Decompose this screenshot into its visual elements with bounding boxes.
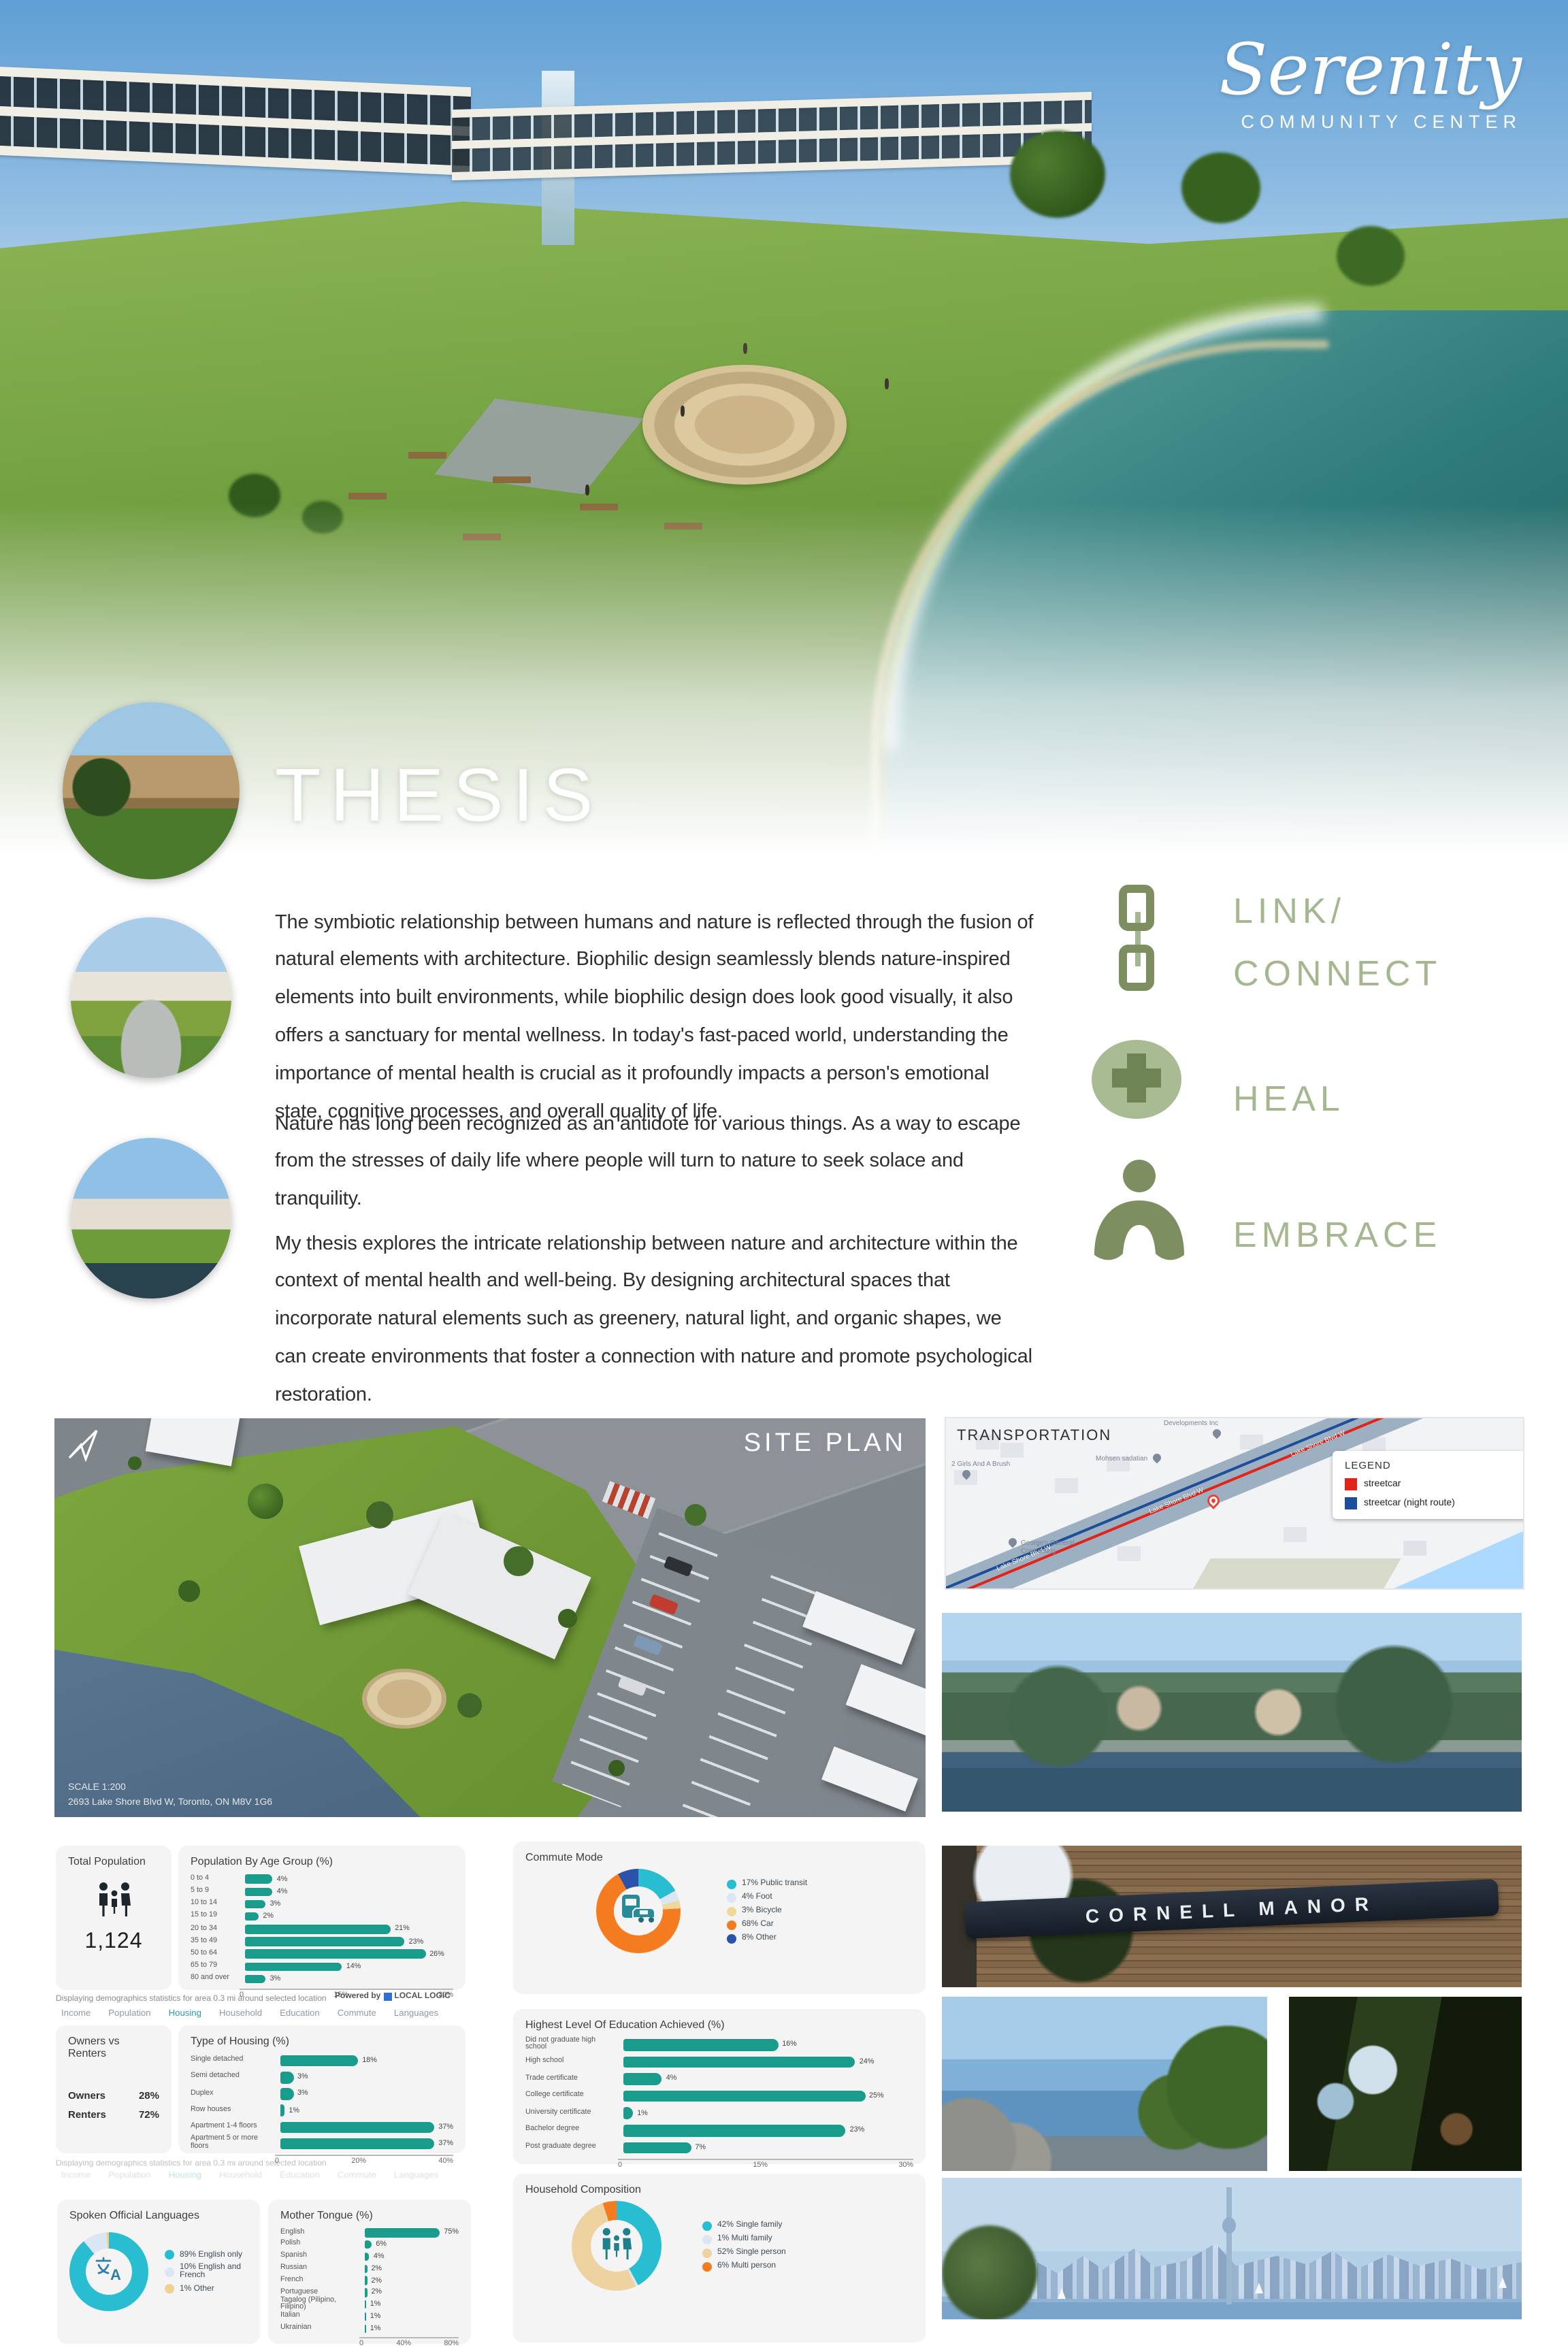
tab-household[interactable]: Household (219, 2171, 262, 2180)
bar-category-label: Russian (280, 2265, 365, 2272)
bar-row: 80 and over3% (191, 1973, 453, 1985)
legend-label: 8% Other (742, 1934, 777, 1942)
legend-item: 42% Single family (702, 2221, 786, 2230)
legend-swatch (727, 1879, 736, 1889)
bar-category-label: Italian (280, 2313, 365, 2320)
powered-by-label: Powered by (335, 1993, 380, 2001)
bar-row: Tagalog (Pilipino, Filipino)1% (280, 2299, 459, 2311)
map-pin-label: Developments Inc (1164, 1420, 1218, 1428)
site-plan-rendering: SITE PLAN SCALE 1:200 2693 Lake Shore Bl… (54, 1418, 926, 1817)
bar-value: 23% (409, 1938, 424, 1946)
stat-row: Owners28% (68, 2089, 159, 2102)
bar-value: 1% (289, 2106, 299, 2114)
bar-track: 18% (280, 2055, 453, 2067)
axis-tick: 15% (753, 2161, 768, 2170)
bar-category-label: 20 to 34 (191, 1925, 245, 1933)
cn-tower (1226, 2188, 1231, 2304)
bar-value: 2% (263, 1912, 274, 1921)
bar-row: High school24% (525, 2053, 913, 2070)
bar-value: 2% (371, 2265, 382, 2273)
bar-category-label: Portuguese (280, 2289, 365, 2296)
bar-category-label: English (280, 2229, 365, 2236)
tab-income[interactable]: Income (61, 2009, 91, 2019)
demographics-caption: Displaying demographics statistics for a… (56, 2160, 327, 2168)
bar-value: 37% (438, 2140, 453, 2148)
commute-donut (596, 1869, 681, 1953)
site-plan-trees (248, 1484, 283, 1519)
axis-tick: 20% (351, 2157, 366, 2166)
legend-swatch (702, 2221, 712, 2230)
chain-link-icon (1117, 885, 1156, 1000)
bar-track: 3% (245, 1975, 453, 1984)
bar-category-label: 50 to 64 (191, 1950, 245, 1958)
thesis-paragraph-2: Nature has long been recognized as an an… (275, 1106, 1034, 1220)
bar-row: Row houses1% (191, 2102, 453, 2119)
map-legend-label: streetcar (night route) (1364, 1497, 1455, 1509)
stat-label: Renters (68, 2108, 106, 2121)
bar-category-label: Tagalog (Pilipino, Filipino) (280, 2297, 365, 2313)
legend-label: 6% Multi person (717, 2262, 776, 2270)
bar-category-label: 80 and over (191, 1976, 245, 1983)
local-logic-icon (383, 1993, 391, 2001)
bar-value: 1% (370, 2313, 381, 2321)
legend-item: 3% Bicycle (727, 1906, 807, 1916)
brand-title: Serenity (1219, 35, 1522, 106)
total-population-card: Total Population 1,124 (56, 1846, 171, 1990)
bar-value: 23% (850, 2127, 865, 2135)
age-bar-chart: 0 to 44%5 to 94%10 to 143%15 to 192%20 t… (191, 1873, 453, 1999)
bar-category-label: Ukrainian (280, 2325, 365, 2332)
tab-population[interactable]: Population (108, 2171, 150, 2180)
powered-by-brand: LOCAL LOGIC (394, 1993, 450, 2001)
legend-swatch (165, 2284, 174, 2293)
bar-value: 3% (270, 1975, 281, 1983)
bar-value: 21% (395, 1925, 410, 1933)
bar-row: Semi detached3% (191, 2069, 453, 2085)
transportation-title: TRANSPORTATION (957, 1428, 1111, 1444)
map-legend-label: streetcar (1364, 1478, 1401, 1490)
languages-legend: 89% English only10% English and French1%… (165, 2246, 248, 2298)
bar-row: Ukrainian1% (280, 2323, 459, 2335)
education-chart-title: Highest Level Of Education Achieved (%) (525, 2019, 913, 2031)
tab-languages[interactable]: Languages (394, 2009, 438, 2019)
site-plan-title: SITE PLAN (744, 1429, 906, 1459)
cornell-manor-sign-text: CORNELL MANOR (1085, 1892, 1378, 1927)
north-arrow-icon (65, 1426, 101, 1469)
bar-category-label: Semi detached (191, 2074, 280, 2081)
x-axis: 015%30% (618, 2159, 913, 2170)
housing-type-chart-card: Type of Housing (%) Single detached18%Se… (178, 2025, 465, 2153)
site-plan-scale: SCALE 1:200 (68, 1783, 126, 1793)
bar-category-label: 5 to 9 (191, 1888, 245, 1895)
bar-value: 3% (297, 2090, 308, 2098)
tab-household[interactable]: Household (219, 2009, 262, 2019)
bar-track: 2% (245, 1912, 453, 1921)
axis-tick: 0 (618, 2161, 622, 2170)
map-legend-swatch (1345, 1497, 1357, 1509)
bar-value: 4% (374, 2253, 385, 2261)
bar-track: 6% (365, 2240, 459, 2249)
legend-item: 68% Car (727, 1920, 807, 1929)
bar-category-label: Bachelor degree (525, 2127, 623, 2134)
bar-category-label: University certificate (525, 2110, 623, 2117)
bar-value: 2% (371, 2276, 382, 2285)
total-population-title: Total Population (68, 1855, 159, 1867)
map-pin-label: Mohsen sadatian (1096, 1455, 1147, 1463)
bar-category-label: 10 to 14 (191, 1900, 245, 1908)
legend-swatch (727, 1906, 736, 1916)
bar-track: 4% (245, 1875, 453, 1884)
bar-value: 3% (297, 2074, 308, 2082)
education-bar-chart: Did not graduate high school16%High scho… (525, 2036, 913, 2170)
bar-track: 37% (280, 2138, 453, 2150)
site-plan-amphitheater (362, 1669, 446, 1729)
bar (365, 2276, 367, 2285)
bar (623, 2108, 633, 2119)
family-icon (93, 1881, 134, 1923)
bar (365, 2240, 372, 2249)
owners-vs-renters-card: Owners vs Renters Owners28%Renters72% (56, 2025, 171, 2153)
value-label-embrace: EMBRACE (1233, 1203, 1441, 1267)
commute-legend: 17% Public transit4% Foot3% Bicycle68% C… (727, 1875, 807, 1947)
bar-track: 23% (623, 2125, 913, 2136)
site-plan-neighbor-building (146, 1418, 242, 1466)
bar-value: 6% (376, 2240, 387, 2249)
bar-row: Polish6% (280, 2239, 459, 2251)
age-group-chart-card: Population By Age Group (%) 0 to 44%5 to… (178, 1846, 465, 1990)
thumbnail-render-3 (71, 1138, 231, 1298)
languages-title: Spoken Official Languages (69, 2209, 248, 2221)
legend-item: 1% Other (165, 2284, 248, 2293)
map-water (1394, 1531, 1523, 1588)
mother-tongue-bar-chart: English75%Polish6%Spanish4%Russian2%Fren… (280, 2227, 459, 2348)
medical-cross-icon (1089, 1037, 1184, 1128)
bar-category-label: 65 to 79 (191, 1963, 245, 1970)
presentation-board: Serenity COMMUNITY CENTER THESIS The sym… (0, 0, 1568, 2352)
legend-item: 17% Public transit (727, 1879, 807, 1889)
bar-track: 7% (623, 2142, 913, 2153)
bar-row: 0 to 44% (191, 1873, 453, 1885)
bar-value: 37% (438, 2123, 453, 2131)
bar-row: 65 to 7914% (191, 1961, 453, 1973)
bar-track: 14% (245, 1962, 453, 1971)
housing-chart-title: Type of Housing (%) (191, 2035, 453, 2047)
photo-shaded-picnic-area (1289, 1997, 1522, 2171)
household-title: Household Composition (525, 2183, 913, 2195)
bar (245, 1912, 259, 1921)
spoken-languages-card: Spoken Official Languages A 89% English … (57, 2200, 260, 2344)
legend-item: 1% Multi family (702, 2234, 786, 2244)
bar-row: 5 to 94% (191, 1885, 453, 1897)
tab-commute[interactable]: Commute (338, 2009, 376, 2019)
bar-value: 16% (782, 2041, 797, 2049)
bar (245, 1875, 273, 1884)
bar-track: 2% (365, 2264, 459, 2273)
bar-track: 37% (280, 2121, 453, 2133)
commute-mode-card: Commute Mode 17% Public transit4% Foot3%… (513, 1842, 926, 1994)
bar (245, 1899, 266, 1908)
bar (365, 2228, 440, 2237)
tab-languages[interactable]: Languages (394, 2171, 438, 2180)
axis-tick: 30% (898, 2161, 913, 2170)
skyline-tree (942, 2226, 1037, 2319)
bar-value: 1% (370, 2300, 381, 2308)
legend-swatch (165, 2267, 174, 2276)
bar-track: 75% (365, 2228, 459, 2237)
legend-item: 89% English only (165, 2250, 248, 2259)
map-legend-item: streetcar (night route) (1345, 1497, 1519, 1509)
owners-renters-title: Owners vs Renters (68, 2035, 159, 2059)
photo-shoreline-aerial (942, 1613, 1522, 1812)
x-axis: 040%80% (359, 2337, 459, 2348)
bar-row: Spanish4% (280, 2251, 459, 2263)
bar-category-label: 15 to 19 (191, 1913, 245, 1921)
map-legend-swatch (1345, 1478, 1357, 1490)
map-pin-icon (1151, 1452, 1163, 1464)
mother-tongue-title: Mother Tongue (%) (280, 2209, 459, 2221)
family-icon (598, 2226, 636, 2266)
bar-track: 23% (245, 1938, 453, 1946)
bar-category-label: Polish (280, 2241, 365, 2249)
tab-education[interactable]: Education (280, 2009, 320, 2019)
bar-value: 7% (695, 2144, 706, 2152)
legend-label: 10% English and French (180, 2264, 248, 2280)
bar-value: 24% (860, 2058, 875, 2066)
transportation-map: Lake Shore Blvd W Lake Shore Blvd W Lake… (946, 1418, 1523, 1588)
bar-category-label: Did not graduate high school (525, 2037, 623, 2053)
legend-swatch (727, 1933, 736, 1943)
site-plan-neighbor-building (821, 1746, 918, 1812)
bar-value: 14% (346, 1963, 361, 1971)
site-plan-address: 2693 Lake Shore Blvd W, Toronto, ON M8V … (68, 1798, 272, 1808)
thumbnail-render-2 (71, 917, 231, 1078)
tab-housing[interactable]: Housing (169, 2171, 201, 2180)
bar-value: 26% (429, 1950, 444, 1958)
bar-category-label: Row houses (191, 2107, 280, 2114)
bar-row: Bachelor degree23% (525, 2122, 913, 2139)
bar (623, 2091, 865, 2102)
bar (623, 2125, 846, 2136)
map-legend: LEGEND streetcarstreetcar (night route) (1333, 1451, 1523, 1519)
legend-label: 17% Public transit (742, 1880, 807, 1888)
brand-subtitle: COMMUNITY CENTER (1219, 112, 1522, 132)
housing-bar-chart: Single detached18%Semi detached3%Duplex3… (191, 2053, 453, 2166)
bar (623, 2142, 691, 2153)
bar-track: 24% (623, 2056, 913, 2068)
skyline-city-band (1011, 2237, 1522, 2300)
tab-housing[interactable]: Housing (169, 2009, 201, 2019)
bar-category-label: High school (525, 2058, 623, 2065)
bar (365, 2324, 366, 2333)
bar-track: 3% (245, 1899, 453, 1908)
bar-value: 1% (370, 2325, 381, 2333)
bar-row: French2% (280, 2274, 459, 2287)
axis-tick: 40% (438, 2157, 453, 2166)
tab-population[interactable]: Population (108, 2009, 150, 2019)
bar-value: 1% (637, 2109, 648, 2117)
bar-category-label: Duplex (191, 2090, 280, 2097)
bar (365, 2264, 367, 2273)
bar-track: 4% (245, 1887, 453, 1896)
bar (280, 2105, 284, 2117)
bar-value: 4% (666, 2075, 677, 2083)
legend-label: 52% Single person (717, 2249, 786, 2257)
bar-value: 2% (371, 2289, 382, 2297)
bar-track: 4% (623, 2073, 913, 2085)
legend-label: 1% Multi family (717, 2235, 772, 2243)
bar (245, 1962, 342, 1971)
legend-label: 4% Foot (742, 1893, 772, 1901)
bar-row: 50 to 6426% (191, 1948, 453, 1960)
bar-track: 21% (245, 1925, 453, 1933)
sailboat (1255, 2283, 1263, 2293)
bar-track: 1% (365, 2312, 459, 2321)
bar-row: Russian2% (280, 2263, 459, 2275)
total-population-value: 1,124 (84, 1930, 142, 1955)
bar-row: College certificate25% (525, 2088, 913, 2105)
mother-tongue-chart-card: Mother Tongue (%) English75%Polish6%Span… (268, 2200, 471, 2344)
bar-row: 35 to 4923% (191, 1935, 453, 1948)
bar (245, 1887, 273, 1896)
bar-track: 26% (245, 1950, 453, 1959)
bar-category-label: Apartment 1-4 floors (191, 2123, 280, 2131)
household-composition-card: Household Composition 42% Single family1… (513, 2174, 926, 2342)
household-donut (572, 2201, 661, 2291)
bar-row: 15 to 192% (191, 1910, 453, 1923)
bar-category-label: Apartment 5 or more floors (191, 2136, 280, 2152)
value-link-line1: LINK/ (1233, 879, 1441, 943)
stat-value: 28% (139, 2089, 159, 2102)
bar-row: English75% (280, 2227, 459, 2239)
map-pin-icon (1211, 1428, 1223, 1439)
legend-swatch (727, 1920, 736, 1929)
bar-row: Apartment 5 or more floors37% (191, 2136, 453, 2152)
household-legend: 42% Single family1% Multi family52% Sing… (702, 2217, 786, 2275)
demographics-tab-bar-faint: IncomePopulationHousingHouseholdEducatio… (61, 2171, 438, 2180)
bar-row: Italian1% (280, 2310, 459, 2323)
bar-row: Apartment 1-4 floors37% (191, 2119, 453, 2136)
bar (365, 2300, 366, 2309)
legend-swatch (165, 2250, 174, 2259)
bar (245, 1925, 391, 1933)
age-chart-title: Population By Age Group (%) (191, 1855, 453, 1867)
bar-track: 25% (623, 2091, 913, 2102)
sailboat (1058, 2288, 1066, 2299)
bar-category-label: Post graduate degree (525, 2144, 623, 2151)
bar-category-label: Spanish (280, 2253, 365, 2260)
tab-commute[interactable]: Commute (338, 2171, 376, 2180)
legend-label: 42% Single family (717, 2221, 782, 2229)
map-legend-item: streetcar (1345, 1478, 1519, 1490)
axis-tick: 40% (396, 2340, 411, 2348)
bar-row: Single detached18% (191, 2053, 453, 2069)
bar-track: 1% (623, 2108, 913, 2119)
value-label-heal: HEAL (1233, 1067, 1345, 1130)
person-embrace-icon (1081, 1157, 1198, 1267)
map-pin-label: George's General Contracting (1021, 1539, 1102, 1556)
legend-item: 10% English and French (165, 2264, 248, 2280)
bar (280, 2138, 434, 2150)
photo-cornell-manor: CORNELL MANOR (942, 1846, 1522, 1987)
bar (623, 2073, 662, 2085)
commute-title: Commute Mode (525, 1851, 913, 1863)
bar-category-label: French (280, 2277, 365, 2285)
legend-item: 8% Other (727, 1933, 807, 1943)
legend-swatch (702, 2248, 712, 2257)
owners-renters-rows: Owners28%Renters72% (68, 2089, 159, 2121)
axis-tick: 80% (444, 2340, 459, 2348)
bar-value: 18% (362, 2057, 377, 2065)
bar (623, 2056, 855, 2068)
tab-education[interactable]: Education (280, 2171, 320, 2180)
svg-text:A: A (110, 2266, 121, 2282)
legend-swatch (702, 2261, 712, 2271)
bar-row: University certificate1% (525, 2105, 913, 2122)
legend-item: 52% Single person (702, 2248, 786, 2257)
bar-track: 1% (365, 2324, 459, 2333)
thesis-paragraph-3: My thesis explores the intricate relatio… (275, 1226, 1034, 1415)
bar (280, 2055, 358, 2067)
bar-row: Post graduate degree7% (525, 2139, 913, 2156)
tab-income[interactable]: Income (61, 2171, 91, 2180)
bar-track: 1% (280, 2105, 453, 2117)
bar-category-label: 0 to 4 (191, 1876, 245, 1883)
bar-category-label: Single detached (191, 2057, 280, 2065)
stat-row: Renters72% (68, 2108, 159, 2121)
languages-donut-hole: A (86, 2249, 132, 2295)
bar-track: 3% (280, 2072, 453, 2083)
site-plan-neighbor-building (846, 1664, 926, 1750)
bar-value: 4% (277, 1888, 288, 1896)
bar (245, 1975, 266, 1984)
languages-donut: A (69, 2232, 148, 2311)
map-legend-items: streetcarstreetcar (night route) (1345, 1478, 1519, 1509)
bar (365, 2288, 367, 2297)
bar-category-label: 35 to 49 (191, 1938, 245, 1945)
legend-label: 3% Bicycle (742, 1907, 782, 1915)
photo-toronto-skyline (942, 2178, 1522, 2319)
thesis-heading: THESIS (275, 751, 602, 838)
bar-track: 16% (623, 2039, 913, 2051)
legend-item: 6% Multi person (702, 2261, 786, 2271)
thesis-paragraph-1: The symbiotic relationship between human… (275, 904, 1034, 1132)
photo-lakefront-park (942, 1997, 1267, 2171)
bar-category-label: College certificate (525, 2092, 623, 2100)
bar-value: 75% (444, 2229, 459, 2237)
bar (280, 2121, 434, 2133)
bar-value: 3% (270, 1900, 281, 1908)
bar-value: 4% (277, 1875, 288, 1883)
powered-by: Powered by LOCAL LOGIC (335, 1993, 451, 2001)
bar-track: 3% (280, 2088, 453, 2100)
legend-label: 89% English only (180, 2251, 242, 2259)
map-legend-title: LEGEND (1345, 1459, 1519, 1471)
bar-track: 4% (365, 2252, 459, 2261)
legend-label: 68% Car (742, 1921, 774, 1929)
transit-icon (618, 1893, 659, 1929)
legend-swatch (702, 2234, 712, 2244)
bar-row: Duplex3% (191, 2086, 453, 2102)
sailboat (1499, 2277, 1507, 2288)
brand-logo: Serenity COMMUNITY CENTER (1219, 35, 1522, 132)
translate-icon: A (94, 2255, 124, 2289)
household-donut-hole (591, 2220, 642, 2272)
commute-donut-hole (614, 1886, 663, 1935)
demographics-tab-bar: IncomePopulationHousingHouseholdEducatio… (61, 2009, 438, 2019)
axis-tick: 0 (359, 2340, 363, 2348)
bar (365, 2312, 366, 2321)
bar-track: 1% (365, 2300, 459, 2309)
